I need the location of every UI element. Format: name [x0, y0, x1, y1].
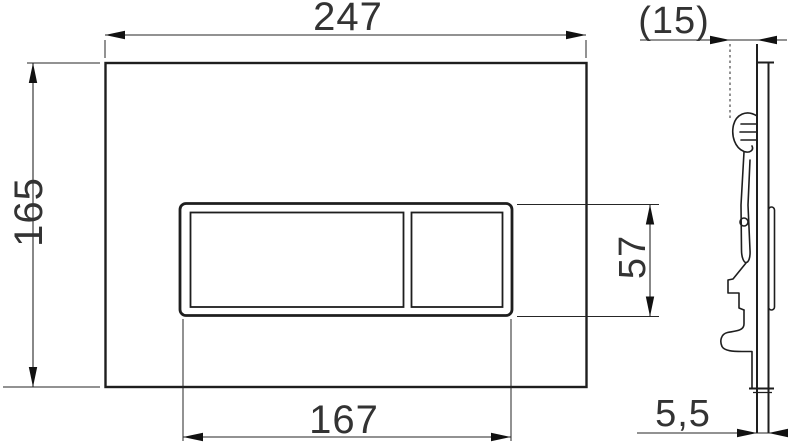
dim-button-panel-height: 57: [517, 205, 659, 317]
dim-overall-width: 247: [105, 0, 586, 58]
flush-plate-technical-drawing: 247 165 167: [0, 0, 789, 444]
plate-outline: [106, 63, 587, 387]
dim-button-panel-width: 167: [183, 319, 511, 442]
arrowhead-left: [105, 31, 125, 39]
side-step-bracket: [728, 263, 746, 310]
dim-overall-depth-label: (15): [638, 0, 710, 42]
arrowhead-right: [566, 31, 586, 39]
dim-overall-width-label: 247: [313, 0, 383, 39]
dim-button-panel-height-label: 57: [612, 235, 654, 279]
arrowhead-top: [646, 205, 654, 225]
large-flush-button: [191, 213, 404, 308]
dim-plate-thickness: 5,5: [637, 393, 788, 437]
dim-overall-depth: (15): [638, 0, 787, 120]
arrowhead-inward-right: [710, 36, 730, 44]
front-view: [106, 63, 587, 387]
arrowhead-right: [491, 433, 511, 441]
dim-button-panel-width-label: 167: [309, 398, 379, 442]
arrowhead-inward-left: [769, 429, 789, 437]
arrowhead-left: [183, 433, 203, 441]
arrowhead-inward-left: [757, 36, 777, 44]
dimensions: 247 165 167: [3, 0, 788, 442]
small-flush-button: [412, 213, 503, 308]
side-bottom-hook: [721, 310, 752, 388]
side-latch-rod: [741, 152, 750, 263]
dim-overall-height: 165: [3, 63, 100, 387]
dim-overall-height-label: 165: [7, 177, 51, 247]
arrowhead-inward-right: [737, 429, 757, 437]
arrowhead-bottom: [29, 367, 37, 387]
button-panel-frame: [180, 204, 512, 316]
arrowhead-top: [29, 63, 37, 83]
arrowhead-bottom: [646, 297, 654, 317]
drawing-canvas: 247 165 167: [0, 0, 789, 444]
dim-plate-thickness-label: 5,5: [655, 393, 711, 435]
side-view: [721, 44, 775, 433]
